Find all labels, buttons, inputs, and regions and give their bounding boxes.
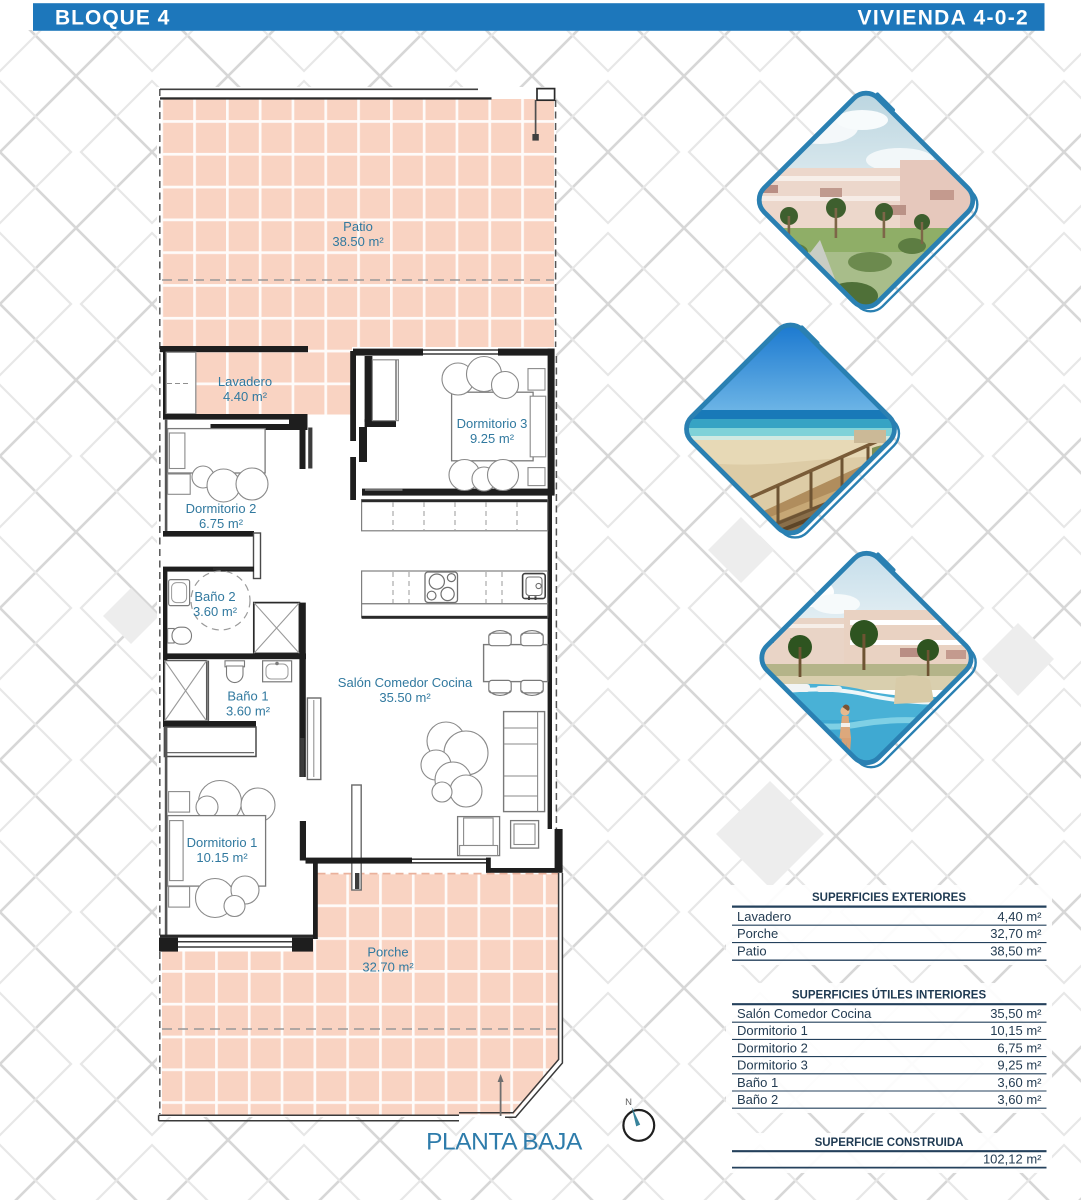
svg-text:Dormitorio 2: Dormitorio 2	[186, 501, 257, 516]
svg-text:SUPERFICIES ÚTILES INTERIORES: SUPERFICIES ÚTILES INTERIORES	[792, 988, 987, 1001]
svg-text:N: N	[625, 1097, 632, 1108]
svg-text:Dormitorio 3: Dormitorio 3	[457, 416, 528, 431]
svg-text:9.25 m²: 9.25 m²	[470, 431, 515, 446]
svg-text:Baño 2: Baño 2	[737, 1092, 778, 1107]
svg-text:Lavadero: Lavadero	[218, 374, 272, 389]
svg-text:Salón Comedor Cocina: Salón Comedor Cocina	[338, 675, 473, 690]
svg-text:Dormitorio 1: Dormitorio 1	[187, 835, 258, 850]
svg-text:PLANTA BAJA: PLANTA BAJA	[426, 1129, 583, 1156]
svg-text:38,50 m²: 38,50 m²	[990, 944, 1042, 959]
svg-text:6.75 m²: 6.75 m²	[199, 516, 244, 531]
svg-text:Baño 1: Baño 1	[737, 1075, 778, 1090]
svg-text:Dormitorio 2: Dormitorio 2	[737, 1040, 808, 1055]
svg-text:3,60 m²: 3,60 m²	[997, 1075, 1042, 1090]
svg-text:10.15 m²: 10.15 m²	[196, 850, 248, 865]
svg-text:32,70 m²: 32,70 m²	[990, 926, 1042, 941]
svg-text:BLOQUE 4: BLOQUE 4	[55, 7, 170, 30]
svg-text:4,40 m²: 4,40 m²	[997, 909, 1042, 924]
svg-text:9,25 m²: 9,25 m²	[997, 1058, 1042, 1073]
svg-text:35.50 m²: 35.50 m²	[379, 690, 431, 705]
svg-text:Dormitorio 3: Dormitorio 3	[737, 1058, 808, 1073]
svg-text:Patio: Patio	[343, 219, 373, 234]
svg-text:Baño 2: Baño 2	[194, 589, 235, 604]
svg-text:38.50 m²: 38.50 m²	[332, 234, 384, 249]
svg-text:Lavadero: Lavadero	[737, 909, 791, 924]
svg-text:6,75 m²: 6,75 m²	[997, 1040, 1042, 1055]
svg-text:Patio: Patio	[737, 944, 767, 959]
svg-text:3.60 m²: 3.60 m²	[193, 604, 238, 619]
svg-text:10,15 m²: 10,15 m²	[990, 1023, 1042, 1038]
svg-text:Baño 1: Baño 1	[227, 689, 268, 704]
svg-text:3.60 m²: 3.60 m²	[226, 704, 271, 719]
svg-text:32.70 m²: 32.70 m²	[362, 960, 414, 975]
svg-text:VIVIENDA 4-0-2: VIVIENDA 4-0-2	[858, 7, 1029, 30]
svg-text:Salón Comedor Cocina: Salón Comedor Cocina	[737, 1006, 872, 1021]
svg-text:3,60 m²: 3,60 m²	[997, 1092, 1042, 1107]
svg-text:SUPERFICIE CONSTRUIDA: SUPERFICIE CONSTRUIDA	[815, 1137, 964, 1149]
svg-text:SUPERFICIES EXTERIORES: SUPERFICIES EXTERIORES	[812, 892, 966, 904]
svg-text:Porche: Porche	[367, 945, 408, 960]
svg-text:4.40 m²: 4.40 m²	[223, 389, 268, 404]
svg-text:102,12 m²: 102,12 m²	[983, 1151, 1042, 1166]
svg-text:35,50 m²: 35,50 m²	[990, 1006, 1042, 1021]
svg-text:Dormitorio 1: Dormitorio 1	[737, 1023, 808, 1038]
svg-text:Porche: Porche	[737, 926, 778, 941]
